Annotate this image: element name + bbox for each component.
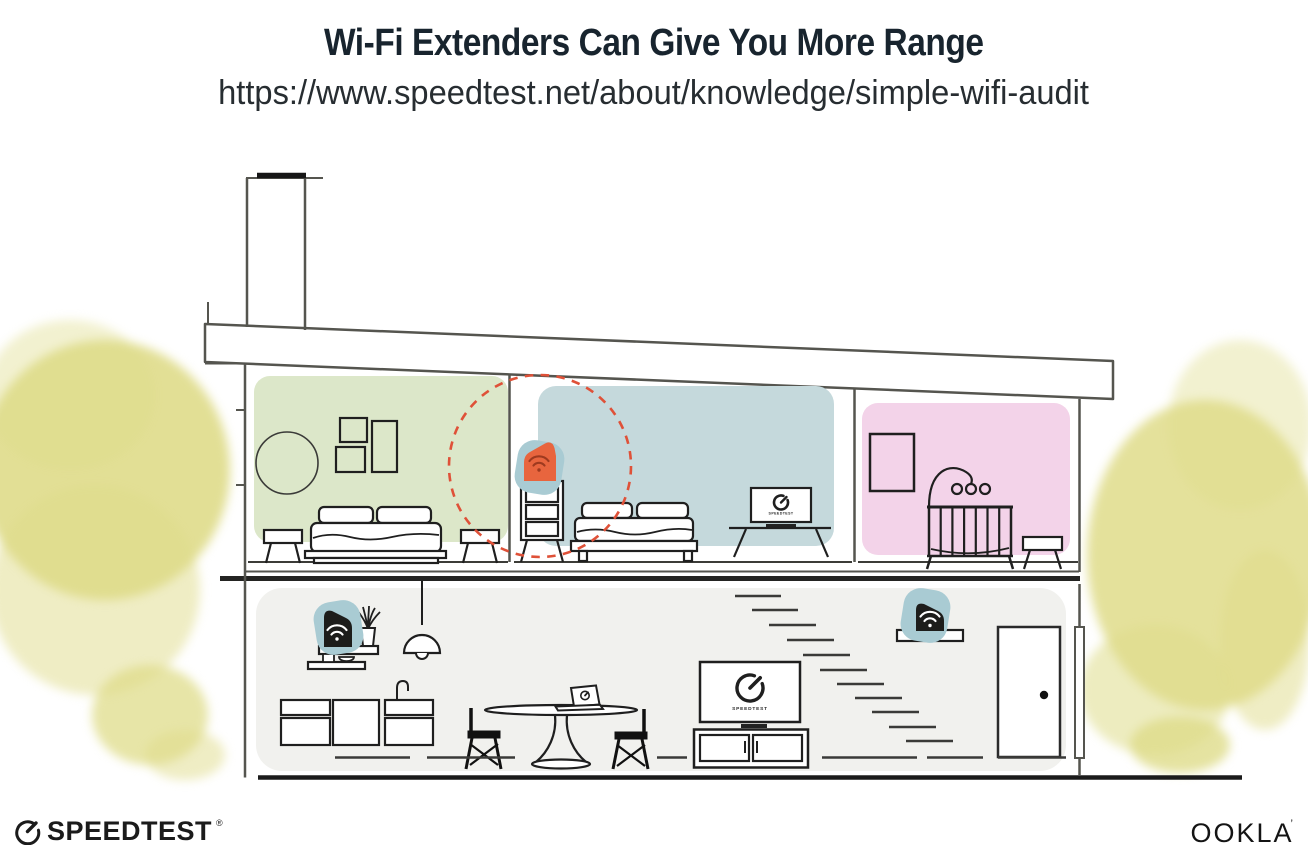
speedtest-wordmark: SPEEDTEST	[47, 816, 212, 847]
entry-door	[998, 627, 1060, 757]
downspout	[1075, 627, 1084, 758]
speedtest-gauge-icon	[14, 818, 41, 845]
downstairs-tv-label: SPEEDTEST	[732, 706, 768, 712]
page: { "header": { "title": "Wi-Fi Extenders …	[0, 0, 1308, 861]
ookla-logo: OOKLA’	[1191, 818, 1297, 849]
house-illustration: SPEEDTEST	[0, 0, 1308, 861]
nursery-bg	[862, 403, 1070, 555]
downstairs-tv	[700, 662, 800, 728]
ookla-wordmark: OOKLA	[1191, 818, 1294, 849]
upstairs-tv	[751, 488, 811, 522]
chimney	[246, 176, 323, 331]
upstairs-tv-label: SPEEDTEST	[769, 512, 794, 516]
media-cabinet	[694, 730, 808, 768]
page-url: https://www.speedtest.net/about/knowledg…	[0, 74, 1308, 113]
page-title: Wi-Fi Extenders Can Give You More Range	[0, 22, 1308, 65]
foliage-right	[1080, 340, 1308, 773]
trademark-tick: ’	[1291, 818, 1293, 830]
foliage-left	[0, 320, 230, 780]
door-knob	[1040, 691, 1048, 699]
registered-mark: ®	[216, 818, 223, 828]
speedtest-logo: SPEEDTEST®	[14, 816, 225, 847]
